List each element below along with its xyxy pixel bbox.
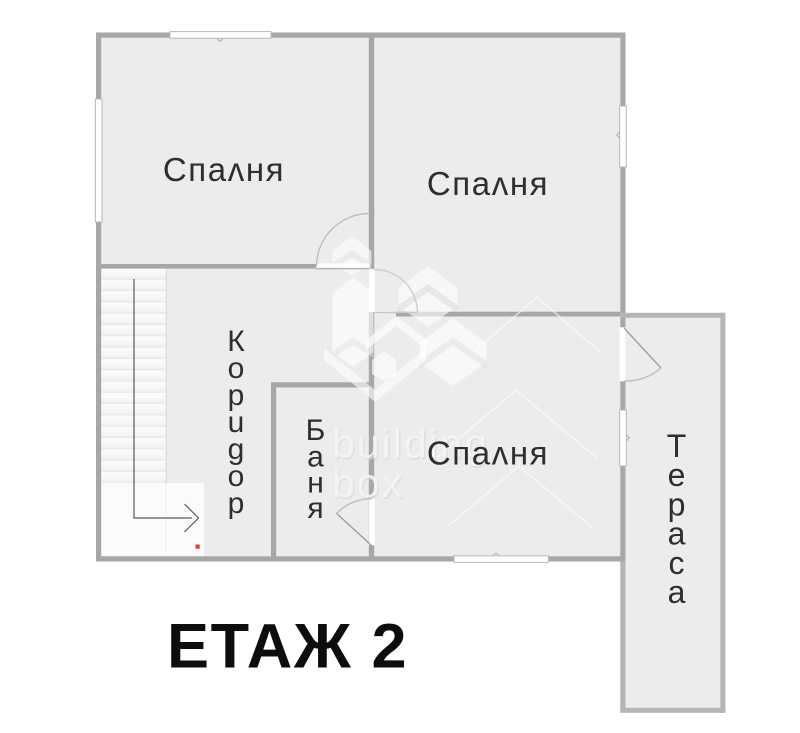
svg-text:Спаʌня: Спаʌня <box>163 151 285 188</box>
svg-text:я: я <box>307 492 323 525</box>
svg-text:Спаʌня: Спаʌня <box>427 165 549 202</box>
svg-text:а: а <box>668 574 686 610</box>
svg-text:ЕТАЖ 2: ЕТАЖ 2 <box>167 612 408 682</box>
svg-text:Спаʌня: Спаʌня <box>427 435 549 472</box>
svg-text:р: р <box>228 487 245 520</box>
